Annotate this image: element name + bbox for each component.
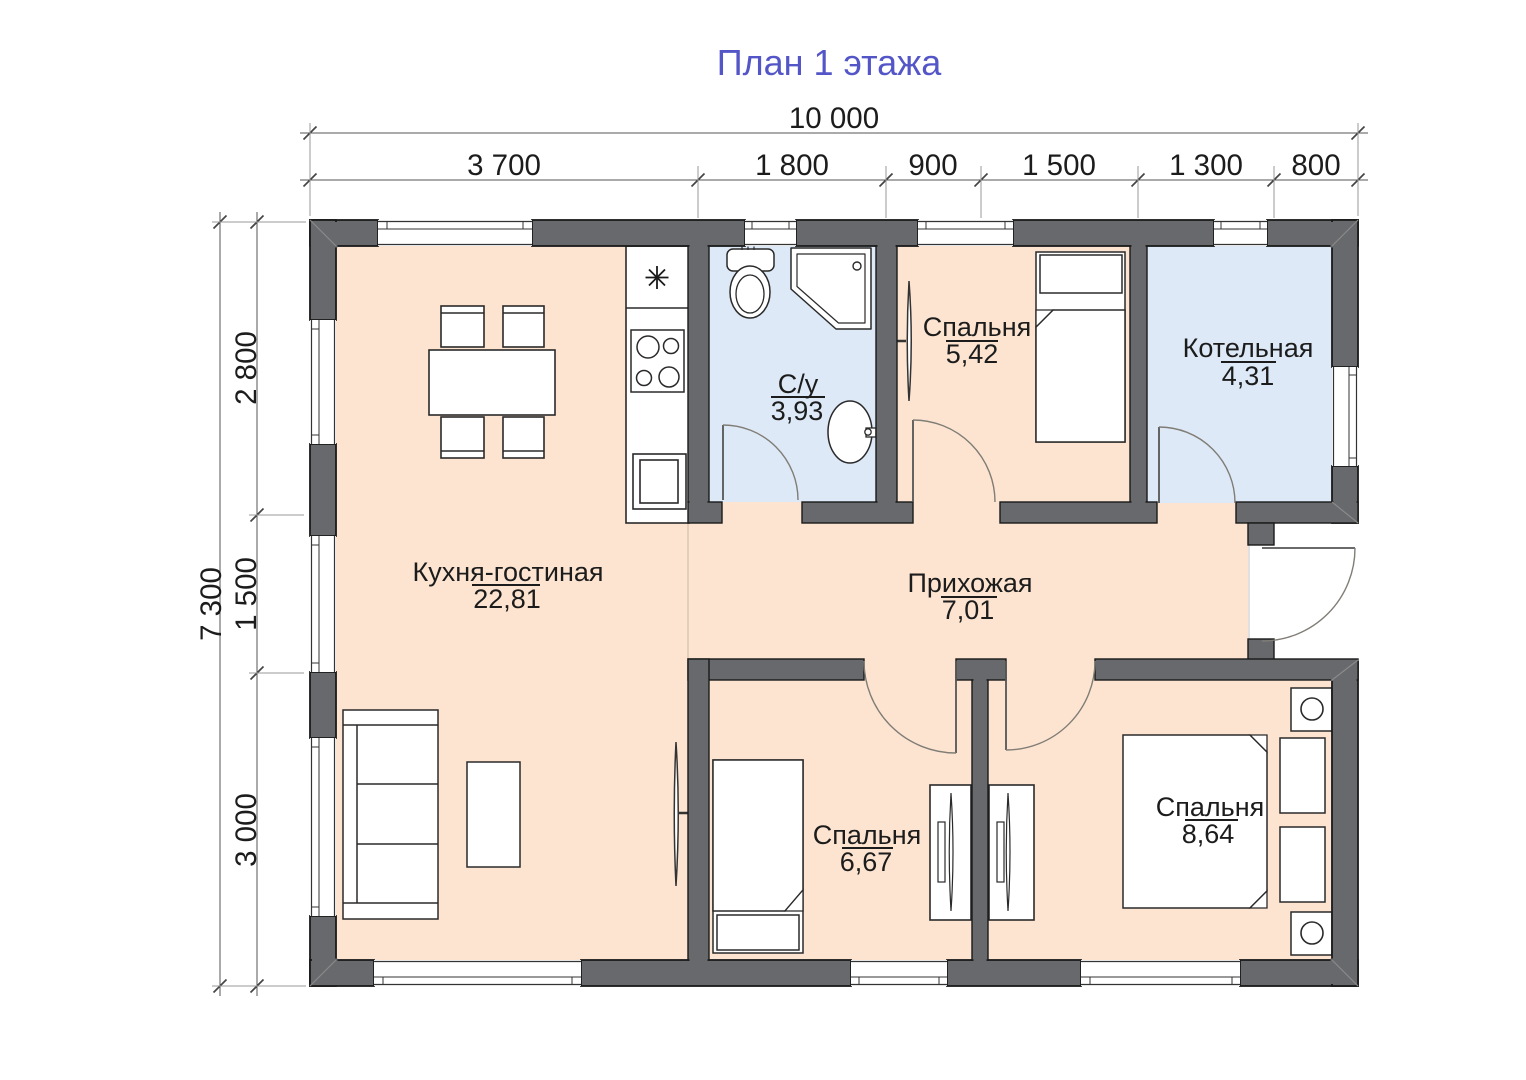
- svg-text:3,93: 3,93: [771, 396, 824, 426]
- svg-text:С/у: С/у: [778, 369, 819, 399]
- svg-text:Кухня-гостиная: Кухня-гостиная: [412, 557, 603, 587]
- svg-text:План 1 этажа: План 1 этажа: [717, 42, 943, 83]
- svg-text:7 300: 7 300: [195, 567, 228, 641]
- svg-text:8,64: 8,64: [1182, 819, 1235, 849]
- svg-text:5,42: 5,42: [946, 339, 999, 369]
- svg-text:1 500: 1 500: [1022, 149, 1096, 182]
- svg-text:4,31: 4,31: [1222, 361, 1275, 391]
- svg-text:Прихожая: Прихожая: [907, 568, 1032, 598]
- svg-text:1 300: 1 300: [1169, 149, 1243, 182]
- svg-text:2 800: 2 800: [230, 331, 263, 405]
- svg-text:6,67: 6,67: [840, 847, 893, 877]
- svg-text:Спальня: Спальня: [813, 820, 922, 850]
- svg-text:7,01: 7,01: [942, 595, 995, 625]
- svg-text:1 800: 1 800: [755, 149, 829, 182]
- svg-text:900: 900: [908, 149, 957, 182]
- svg-text:Котельная: Котельная: [1183, 333, 1314, 363]
- svg-text:800: 800: [1291, 149, 1340, 182]
- svg-text:Спальня: Спальня: [1156, 792, 1265, 822]
- svg-text:Спальня: Спальня: [923, 312, 1032, 342]
- svg-text:10 000: 10 000: [789, 102, 879, 135]
- svg-text:1 500: 1 500: [230, 557, 263, 631]
- svg-text:3 000: 3 000: [230, 793, 263, 867]
- svg-text:3 700: 3 700: [467, 149, 541, 182]
- svg-text:22,81: 22,81: [473, 584, 541, 614]
